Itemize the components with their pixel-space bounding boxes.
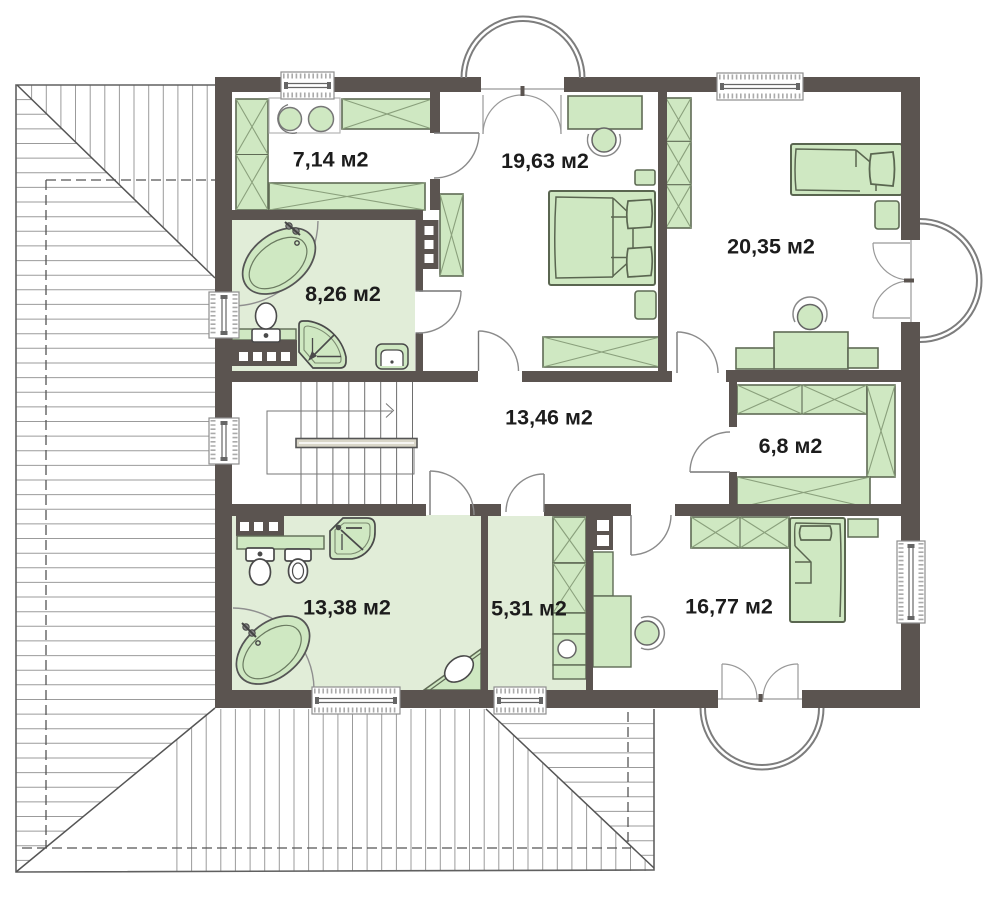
svg-text:5,31 м2: 5,31 м2 xyxy=(491,597,567,621)
svg-text:16,77 м2: 16,77 м2 xyxy=(685,595,773,619)
svg-text:13,38 м2: 13,38 м2 xyxy=(303,596,391,620)
svg-text:20,35 м2: 20,35 м2 xyxy=(727,235,815,259)
svg-text:7,14 м2: 7,14 м2 xyxy=(293,147,369,171)
svg-text:19,63 м2: 19,63 м2 xyxy=(501,149,589,173)
svg-text:8,26 м2: 8,26 м2 xyxy=(305,282,381,306)
svg-text:13,46 м2: 13,46 м2 xyxy=(505,406,593,430)
svg-text:6,8 м2: 6,8 м2 xyxy=(759,434,823,458)
